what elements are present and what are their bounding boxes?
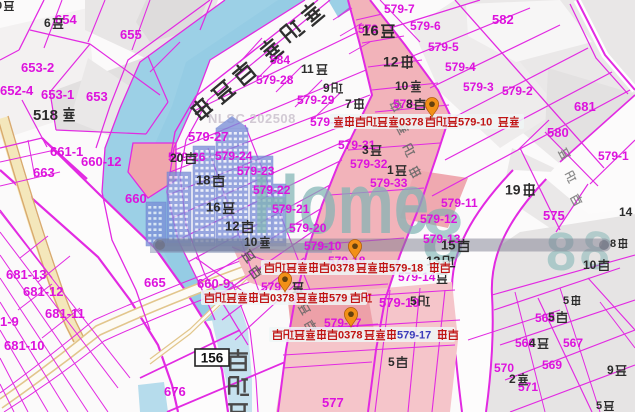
svg-text:8: 8	[406, 97, 413, 111]
svg-text:15: 15	[441, 238, 455, 253]
svg-text:0378: 0378	[330, 263, 354, 275]
svg-text:579-29: 579-29	[297, 93, 335, 107]
svg-text:5: 5	[410, 294, 417, 308]
svg-text:582: 582	[492, 12, 514, 27]
svg-text:11: 11	[301, 62, 314, 76]
svg-text:5: 5	[548, 310, 555, 324]
svg-text:156: 156	[201, 351, 224, 366]
svg-text:579-24: 579-24	[215, 149, 253, 163]
svg-text:12: 12	[383, 53, 399, 69]
svg-text:579-31: 579-31	[338, 138, 376, 152]
svg-text:580: 580	[547, 125, 569, 140]
svg-text:579-2: 579-2	[502, 84, 533, 98]
svg-text:575: 575	[543, 208, 565, 223]
svg-text:579-3: 579-3	[463, 80, 494, 94]
svg-text:579-22: 579-22	[253, 183, 291, 197]
svg-text:10: 10	[395, 79, 409, 93]
svg-text:8: 8	[546, 222, 576, 282]
svg-text:518: 518	[33, 107, 58, 124]
svg-text:579-17: 579-17	[397, 330, 431, 342]
svg-text:652-4: 652-4	[0, 83, 34, 98]
svg-text:18: 18	[196, 173, 210, 188]
svg-text:655: 655	[120, 27, 142, 42]
svg-text:661-1: 661-1	[50, 144, 83, 159]
svg-text:579-33: 579-33	[370, 176, 408, 190]
svg-text:579-10: 579-10	[458, 117, 492, 129]
svg-text:16: 16	[206, 200, 220, 215]
svg-text:5: 5	[596, 400, 602, 412]
svg-text:584: 584	[270, 53, 290, 67]
svg-text:14: 14	[619, 205, 633, 219]
svg-text:10: 10	[583, 258, 597, 272]
svg-text:1: 1	[387, 163, 394, 177]
svg-text:577: 577	[322, 395, 344, 410]
svg-text:653-2: 653-2	[21, 60, 54, 75]
svg-text:579-6: 579-6	[410, 19, 441, 33]
svg-text:579: 579	[329, 293, 347, 305]
svg-text:9: 9	[323, 81, 330, 95]
svg-text:579-10: 579-10	[304, 239, 342, 253]
svg-text:20: 20	[170, 151, 184, 165]
svg-text:0378: 0378	[270, 293, 294, 305]
svg-text:12: 12	[225, 219, 239, 234]
svg-text:653: 653	[86, 89, 108, 104]
svg-text:681-11: 681-11	[45, 306, 85, 321]
svg-text:0378: 0378	[399, 117, 423, 129]
svg-text:5: 5	[563, 295, 569, 307]
svg-text:681-12: 681-12	[23, 284, 63, 299]
svg-text:660: 660	[125, 191, 147, 206]
svg-text:579-27: 579-27	[188, 129, 228, 144]
svg-text:676: 676	[164, 384, 186, 399]
svg-text:NLSC 202508: NLSC 202508	[208, 111, 296, 126]
svg-text:3: 3	[362, 143, 369, 157]
svg-text:653-1: 653-1	[41, 87, 74, 102]
svg-text:1-9: 1-9	[0, 314, 19, 329]
svg-text:16: 16	[362, 22, 379, 39]
svg-text:665: 665	[144, 275, 166, 290]
svg-text:9: 9	[607, 363, 614, 377]
svg-text:19: 19	[505, 181, 521, 197]
svg-text:579-12: 579-12	[420, 212, 458, 226]
svg-text:7: 7	[345, 97, 352, 111]
svg-text:579-1: 579-1	[598, 149, 629, 163]
svg-text:579-5: 579-5	[428, 40, 459, 54]
svg-text:660-12: 660-12	[81, 154, 121, 169]
svg-text:663: 663	[33, 165, 55, 180]
svg-text:681: 681	[574, 99, 596, 114]
svg-text:2: 2	[509, 372, 516, 386]
svg-text:579-11: 579-11	[441, 196, 478, 210]
svg-text:6: 6	[44, 16, 51, 30]
svg-text:569: 569	[542, 358, 562, 372]
svg-text:660-9: 660-9	[197, 276, 230, 291]
svg-text:579-4: 579-4	[445, 60, 476, 74]
svg-text:5: 5	[388, 355, 395, 369]
svg-text:579-7: 579-7	[384, 2, 415, 16]
svg-text:579-23: 579-23	[237, 164, 275, 178]
svg-text:579-20: 579-20	[289, 221, 327, 235]
svg-text:567: 567	[563, 336, 583, 350]
svg-text:0378: 0378	[338, 330, 362, 342]
svg-text:579-32: 579-32	[350, 157, 388, 171]
svg-text:579-18: 579-18	[389, 263, 423, 275]
svg-text:8: 8	[610, 238, 616, 250]
svg-text:579-21: 579-21	[272, 202, 310, 216]
svg-text:10: 10	[244, 235, 258, 249]
svg-text:0: 0	[0, 0, 2, 12]
svg-text:4: 4	[529, 336, 536, 350]
svg-text:681-10: 681-10	[4, 338, 44, 353]
svg-text:681-13: 681-13	[6, 267, 46, 282]
svg-text:579-28: 579-28	[256, 73, 294, 87]
